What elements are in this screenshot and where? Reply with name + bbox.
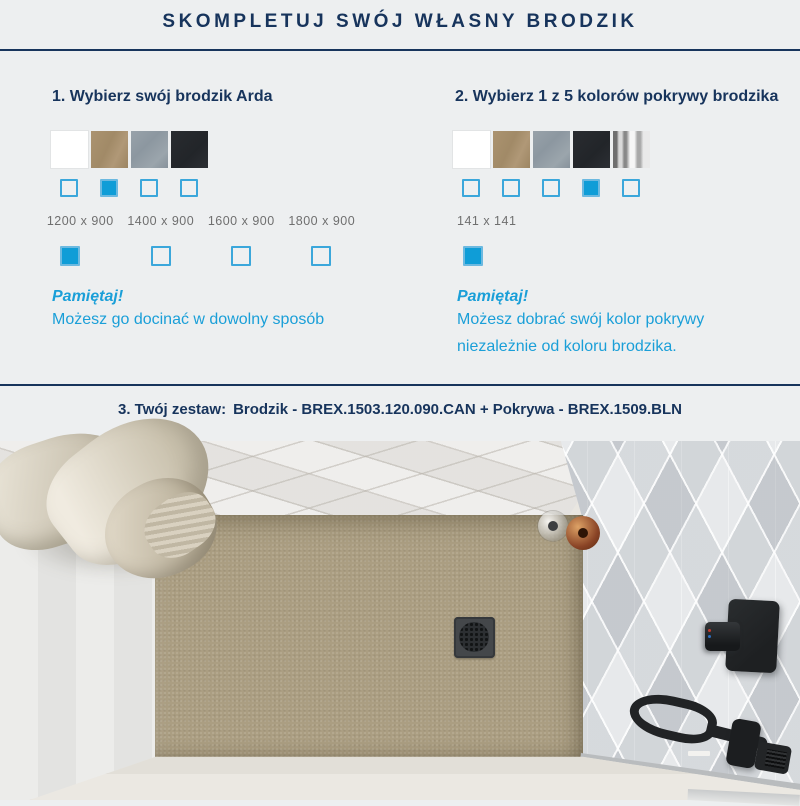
tray-color-checkbox-black[interactable] xyxy=(180,179,198,197)
set-summary-codes: Brodzik - BREX.1503.120.090.CAN + Pokryw… xyxy=(233,401,682,418)
size-label-1600x900: 1600 x 900 xyxy=(201,214,282,228)
tray-color-swatch-white[interactable] xyxy=(51,131,88,168)
step2-reminder-text-line1: Możesz dobrać swój kolor pokrywy xyxy=(457,311,704,329)
size-label-141x141: 141 x 141 xyxy=(457,214,516,228)
set-divider xyxy=(0,384,800,386)
size-checkbox-1200x900[interactable] xyxy=(60,246,80,266)
cover-color-swatch-chrome[interactable] xyxy=(613,131,650,168)
set-summary-prefix: 3. Twój zestaw: xyxy=(118,401,226,418)
tray-color-swatch-black[interactable] xyxy=(171,131,208,168)
bottle-cap xyxy=(578,528,588,538)
size-checkbox-1800x900[interactable] xyxy=(311,246,331,266)
size-checkbox-141x141[interactable] xyxy=(463,246,483,266)
copper-bottle xyxy=(566,516,600,550)
cover-color-checkbox-chrome[interactable] xyxy=(622,179,640,197)
size-label-1400x900: 1400 x 900 xyxy=(121,214,202,228)
page-title: SKOMPLETUJ SWÓJ WŁASNY BRODZIK xyxy=(0,11,800,33)
cover-color-checkbox-tan[interactable] xyxy=(502,179,520,197)
tray-brand-label xyxy=(688,751,710,756)
size-label-1200x900: 1200 x 900 xyxy=(40,214,121,228)
tray-color-checkbox-white[interactable] xyxy=(60,179,78,197)
header-divider xyxy=(0,49,800,51)
step1-size-label-row: 1200 x 900 1400 x 900 1600 x 900 1800 x … xyxy=(40,214,362,228)
glass-bottle xyxy=(538,511,568,541)
cover-color-checkbox-black[interactable] xyxy=(582,179,600,197)
step1-reminder-text: Możesz go docinać w dowolny sposób xyxy=(52,311,324,329)
step1-swatch-row xyxy=(51,131,208,168)
hand-shower-head xyxy=(754,741,792,774)
product-photo xyxy=(0,441,800,800)
tray-color-swatch-gray[interactable] xyxy=(131,131,168,168)
cover-color-checkbox-gray[interactable] xyxy=(542,179,560,197)
cold-indicator-dot xyxy=(708,635,711,638)
size-checkbox-1600x900[interactable] xyxy=(231,246,251,266)
step2-reminder-title: Pamiętaj! xyxy=(457,288,528,306)
cover-color-swatch-black[interactable] xyxy=(573,131,610,168)
bottle-cap xyxy=(548,521,558,531)
tray-color-checkbox-tan[interactable] xyxy=(100,179,118,197)
cover-color-checkbox-white[interactable] xyxy=(462,179,480,197)
hand-shower-grille xyxy=(765,749,788,769)
drain-cover xyxy=(454,617,495,658)
tray-color-swatch-tan[interactable] xyxy=(91,131,128,168)
step2-heading: 2. Wybierz 1 z 5 kolorów pokrywy brodzik… xyxy=(455,88,778,106)
towels xyxy=(0,435,247,590)
cover-color-swatch-gray[interactable] xyxy=(533,131,570,168)
size-checkbox-1400x900[interactable] xyxy=(151,246,171,266)
step1-reminder-title: Pamiętaj! xyxy=(52,288,123,306)
set-summary: 3. Twój zestaw:Brodzik - BREX.1503.120.0… xyxy=(0,401,800,418)
step2-swatch-row xyxy=(453,131,650,168)
size-label-1800x900: 1800 x 900 xyxy=(282,214,363,228)
step1-color-checkbox-row xyxy=(60,179,198,197)
step2-color-checkbox-row xyxy=(462,179,640,197)
tray-color-checkbox-gray[interactable] xyxy=(140,179,158,197)
cover-color-swatch-white[interactable] xyxy=(453,131,490,168)
drain-grille xyxy=(459,622,489,652)
step1-heading: 1. Wybierz swój brodzik Arda xyxy=(52,88,273,106)
hot-indicator-dot xyxy=(708,629,711,632)
cover-color-swatch-tan[interactable] xyxy=(493,131,530,168)
step2-reminder-text-line2: niezależnie od koloru brodzika. xyxy=(457,338,677,356)
